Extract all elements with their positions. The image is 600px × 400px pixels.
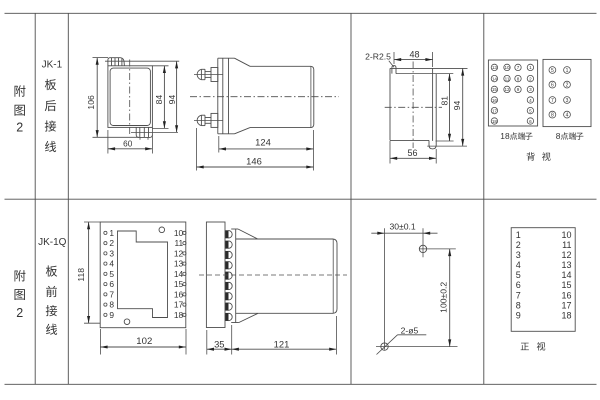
svg-text:7: 7 — [517, 65, 520, 70]
svg-text:16: 16 — [561, 290, 571, 300]
svg-text:10: 10 — [174, 228, 184, 238]
svg-text:1: 1 — [516, 230, 521, 240]
svg-text:4: 4 — [516, 260, 521, 270]
svg-text:JK-1: JK-1 — [42, 60, 63, 71]
svg-text:17: 17 — [174, 300, 184, 310]
svg-text:94: 94 — [452, 101, 462, 111]
svg-text:60: 60 — [123, 140, 133, 149]
svg-text:17: 17 — [492, 108, 498, 113]
svg-text:14: 14 — [174, 269, 184, 279]
svg-text:4: 4 — [529, 98, 532, 103]
svg-text:3: 3 — [516, 250, 521, 260]
svg-text:35: 35 — [214, 338, 224, 349]
svg-text:13: 13 — [492, 65, 498, 70]
svg-text:10: 10 — [504, 65, 510, 70]
svg-text:2: 2 — [16, 306, 23, 320]
svg-text:11: 11 — [562, 240, 571, 250]
svg-text:3: 3 — [566, 98, 569, 104]
svg-text:18: 18 — [174, 310, 184, 320]
svg-text:2: 2 — [109, 238, 114, 248]
svg-text:146: 146 — [246, 156, 262, 167]
svg-text:11: 11 — [505, 76, 510, 81]
svg-text:6: 6 — [516, 280, 521, 290]
svg-text:13: 13 — [174, 259, 184, 269]
svg-text:84: 84 — [154, 95, 164, 105]
svg-text:15: 15 — [561, 280, 571, 290]
svg-text:16: 16 — [492, 98, 498, 103]
svg-text:12: 12 — [504, 87, 510, 92]
svg-text:5: 5 — [109, 269, 114, 279]
svg-text:14: 14 — [492, 76, 498, 81]
svg-text:7: 7 — [109, 289, 114, 299]
svg-text:8: 8 — [551, 113, 554, 119]
svg-text:121: 121 — [274, 338, 290, 349]
svg-text:2: 2 — [529, 76, 532, 81]
svg-text:7: 7 — [516, 290, 521, 300]
svg-text:6: 6 — [551, 83, 554, 89]
svg-text:16: 16 — [174, 289, 184, 299]
svg-text:15: 15 — [174, 279, 184, 289]
svg-text:8: 8 — [556, 131, 561, 141]
svg-text:81: 81 — [439, 96, 449, 106]
svg-text:8: 8 — [516, 300, 521, 310]
svg-text:1: 1 — [529, 65, 532, 70]
svg-text:94: 94 — [167, 95, 177, 105]
svg-text:100±0.2: 100±0.2 — [438, 282, 448, 313]
svg-text:18: 18 — [561, 310, 571, 320]
svg-text:2: 2 — [516, 240, 521, 250]
svg-text:5: 5 — [516, 270, 521, 280]
svg-text:JK-1Q: JK-1Q — [38, 237, 67, 248]
svg-text:10: 10 — [561, 230, 571, 240]
svg-text:13: 13 — [561, 260, 571, 270]
svg-text:2-ø5: 2-ø5 — [401, 326, 419, 336]
svg-text:3: 3 — [109, 248, 114, 258]
svg-text:2: 2 — [566, 83, 569, 89]
svg-text:14: 14 — [561, 270, 571, 280]
svg-text:6: 6 — [529, 119, 532, 124]
svg-text:5: 5 — [551, 68, 554, 74]
svg-text:118: 118 — [76, 268, 86, 282]
svg-text:2: 2 — [16, 121, 23, 135]
svg-text:56: 56 — [407, 148, 417, 158]
svg-text:124: 124 — [255, 137, 271, 148]
svg-text:9: 9 — [516, 310, 521, 320]
svg-text:4: 4 — [109, 259, 114, 269]
svg-text:106: 106 — [86, 95, 96, 110]
svg-text:102: 102 — [136, 336, 152, 347]
svg-text:6: 6 — [109, 279, 114, 289]
svg-text:8: 8 — [109, 300, 114, 310]
svg-text:7: 7 — [551, 98, 554, 104]
svg-text:9: 9 — [517, 87, 520, 92]
svg-text:3: 3 — [529, 87, 532, 92]
svg-text:2-R2.5: 2-R2.5 — [365, 52, 391, 62]
svg-text:1: 1 — [566, 68, 569, 74]
svg-text:18: 18 — [492, 119, 498, 124]
svg-text:18: 18 — [500, 131, 510, 141]
svg-text:1: 1 — [109, 228, 114, 238]
svg-text:4: 4 — [566, 113, 569, 119]
svg-text:30±0.1: 30±0.1 — [389, 222, 415, 232]
svg-text:12: 12 — [174, 248, 184, 258]
svg-text:11: 11 — [174, 238, 183, 248]
svg-text:12: 12 — [561, 250, 571, 260]
svg-text:15: 15 — [492, 87, 498, 92]
svg-text:5: 5 — [529, 108, 532, 113]
svg-text:9: 9 — [109, 310, 114, 320]
svg-text:17: 17 — [561, 300, 571, 310]
svg-text:8: 8 — [517, 76, 520, 81]
svg-text:48: 48 — [409, 50, 419, 60]
